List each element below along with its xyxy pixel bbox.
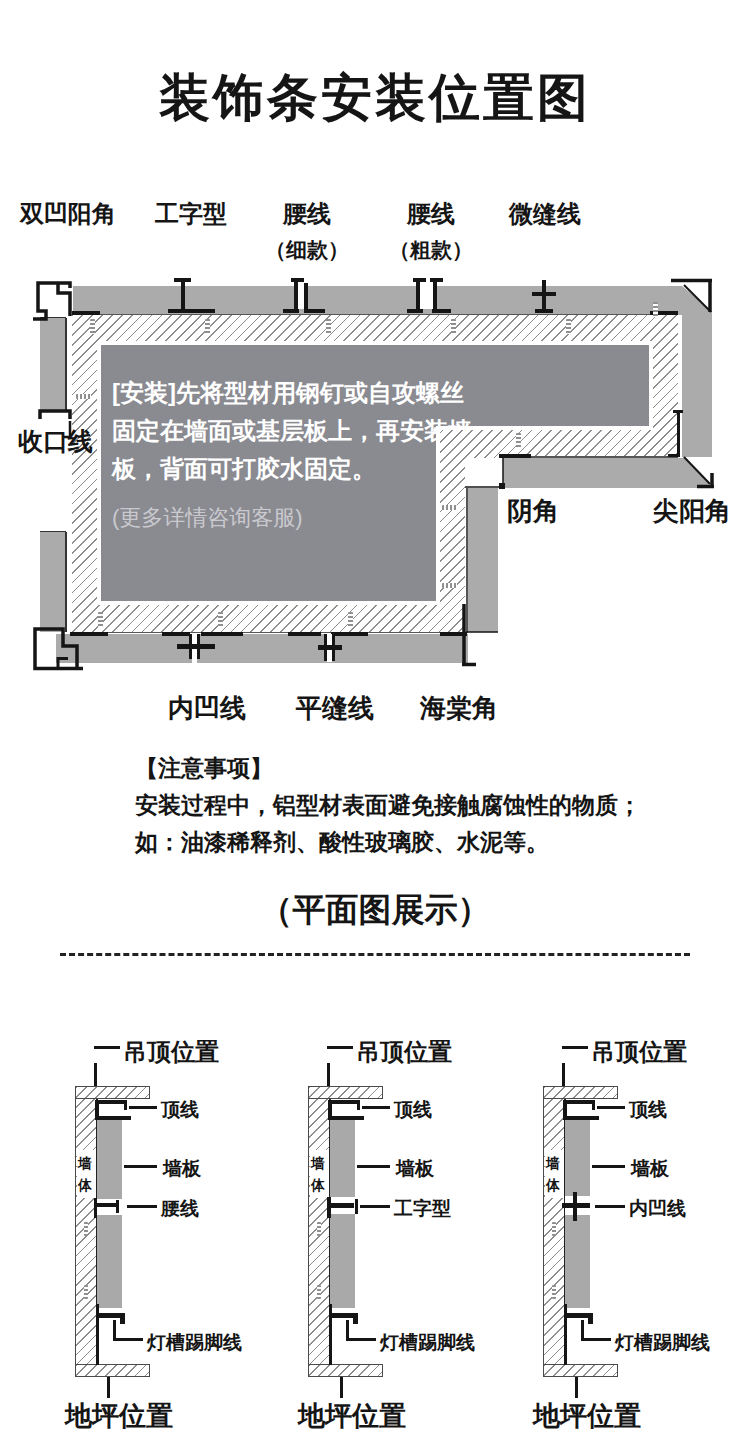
plan-linework	[0, 0, 750, 750]
label-end-cap-line: 收口线	[18, 424, 48, 458]
label-floor-position: 地坪位置	[533, 1398, 641, 1434]
label-wall-body: 墙体	[78, 1152, 94, 1196]
label-middle-trim: 内凹线	[629, 1196, 686, 1222]
notice-heading: 【注意事项】	[135, 750, 641, 787]
screw-icon	[317, 1285, 321, 1299]
wall-panel-section	[330, 1120, 355, 1308]
label-sharp-corner: 尖阳角	[653, 494, 731, 529]
label-wall-body: 墙体	[546, 1152, 562, 1196]
waist-trim-profile-icon	[94, 1198, 97, 1218]
label-ceiling-position: 吊顶位置	[591, 1036, 687, 1068]
wall-section-hatch	[75, 1364, 150, 1377]
notice-line2: 如：油漆稀释剂、酸性玻璃胶、水泥等。	[135, 824, 641, 861]
label-ceiling-position: 吊顶位置	[356, 1036, 452, 1068]
notice-block: 【注意事项】 安装过程中，铝型材表面避免接触腐蚀性的物质； 如：油漆稀释剂、酸性…	[135, 750, 641, 861]
section-diagram-concave-line: 吊顶位置 墙体 灯槽踢脚线 顶线 墙板 内凹线 地坪位置	[543, 1030, 750, 1453]
label-middle-trim: 腰线	[161, 1196, 199, 1222]
screw-icon	[566, 319, 571, 334]
screw-icon	[326, 319, 331, 334]
label-ceiling-position: 吊顶位置	[123, 1036, 219, 1068]
screw-icon	[451, 319, 456, 334]
end-cap-profile-icon	[40, 411, 70, 419]
label-top-trim: 顶线	[394, 1097, 432, 1123]
top-trim-profile-icon	[563, 1100, 595, 1104]
wall-section-hatch	[308, 1364, 383, 1377]
screw-icon	[90, 319, 95, 334]
label-wall-panel: 墙板	[163, 1156, 201, 1182]
screw-icon	[442, 505, 457, 510]
notice-line1: 安装过程中，铝型材表面避免接触腐蚀性的物质；	[135, 787, 641, 824]
label-light-trough-skirting: 灯槽踢脚线	[380, 1330, 475, 1356]
label-wall-panel: 墙板	[396, 1156, 434, 1182]
screw-icon	[84, 1285, 88, 1299]
wall-section-hatch	[308, 1086, 383, 1099]
wall-section-hatch	[75, 1086, 150, 1099]
installation-plan-diagram: [安装]先将型材用钢钉或自攻螺丝 固定在墙面或基层板上，再安装墙 板，背面可打胶…	[0, 0, 750, 750]
label-wall-body: 墙体	[311, 1152, 327, 1196]
double-concave-corner-top-icon	[33, 283, 70, 319]
screw-icon	[205, 319, 210, 334]
wall-section-hatch	[543, 1364, 618, 1377]
screw-icon	[98, 612, 103, 627]
screw-icon	[653, 302, 658, 317]
label-inner-corner: 阴角	[507, 494, 559, 529]
dashed-divider	[60, 953, 690, 956]
screw-icon	[442, 583, 457, 588]
label-floor-position: 地坪位置	[65, 1398, 173, 1434]
label-middle-trim: 工字型	[394, 1196, 451, 1222]
section-diagram-i-beam: 吊顶位置 墙体 灯槽踢脚线 顶线 墙板 工字型 地坪位置	[308, 1030, 548, 1453]
screw-icon	[317, 1222, 321, 1236]
label-top-trim: 顶线	[161, 1097, 199, 1123]
label-wall-panel: 墙板	[631, 1156, 669, 1182]
screw-icon	[218, 612, 223, 627]
label-flat-seam-line: 平缝线	[296, 691, 374, 726]
label-top-trim: 顶线	[629, 1097, 667, 1123]
top-trim-profile-icon	[328, 1100, 360, 1104]
screw-icon	[84, 1222, 88, 1236]
label-begonia-corner: 海棠角	[420, 691, 498, 726]
screw-icon	[516, 433, 521, 448]
label-floor-position: 地坪位置	[298, 1398, 406, 1434]
screw-icon	[348, 612, 353, 627]
screw-icon	[552, 1222, 556, 1236]
plan-view-title: （平面图展示）	[0, 888, 750, 933]
label-light-trough-skirting: 灯槽踢脚线	[615, 1330, 710, 1356]
top-trim-profile-icon	[95, 1100, 127, 1104]
wall-section-hatch	[543, 1086, 618, 1099]
label-light-trough-skirting: 灯槽踢脚线	[147, 1330, 242, 1356]
screw-icon	[552, 1285, 556, 1299]
section-diagram-waist-line: 吊顶位置 墙体 灯槽踢脚线 顶线 墙板 腰线 地坪位置	[75, 1030, 315, 1453]
sharp-corner-bottom-diagonal	[684, 457, 710, 484]
screw-icon	[76, 394, 91, 399]
sharp-corner-top-diagonal	[684, 285, 711, 312]
label-concave-line: 内凹线	[168, 691, 246, 726]
